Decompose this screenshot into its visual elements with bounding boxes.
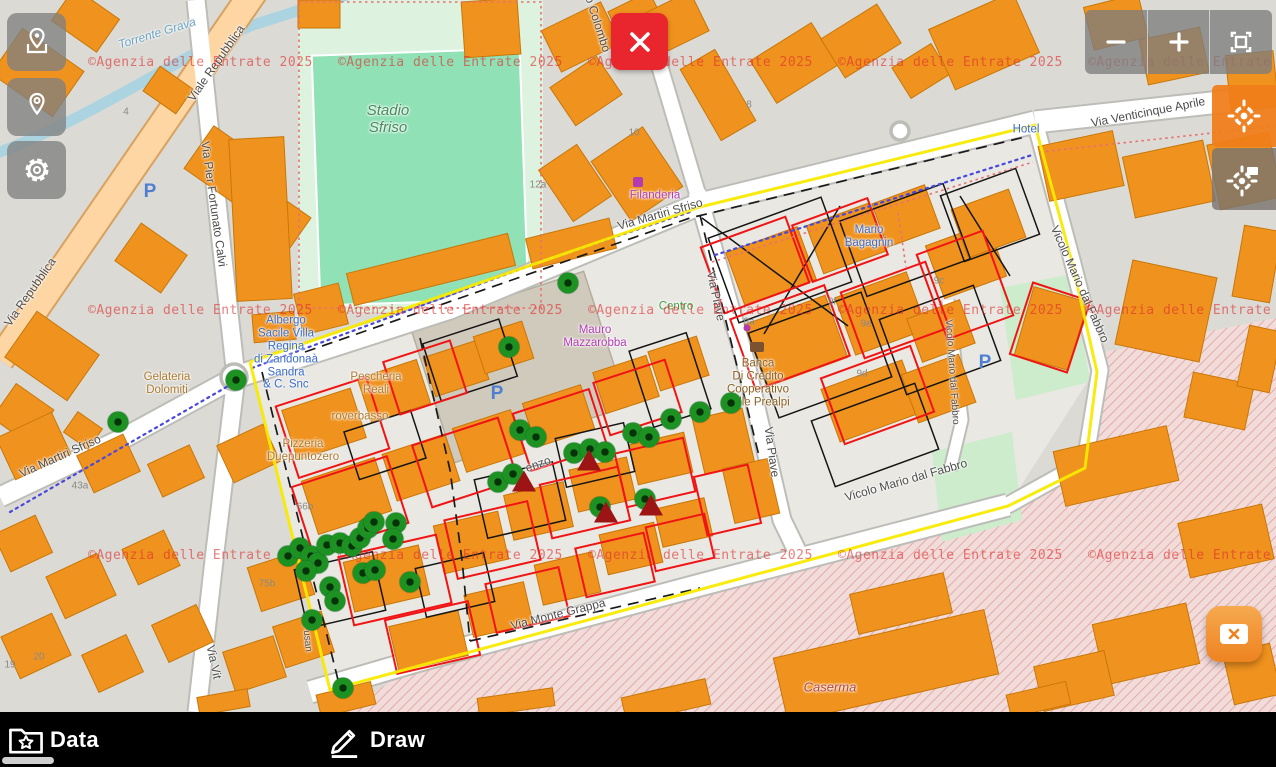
locate-me-button[interactable] — [1212, 85, 1276, 147]
green-point-marker[interactable] — [499, 337, 520, 358]
green-point-marker[interactable] — [595, 442, 616, 463]
gear-icon — [20, 153, 54, 187]
data-button-label: Data — [50, 727, 99, 753]
location-pin-button[interactable] — [7, 78, 66, 136]
crosshair-icon — [1226, 98, 1262, 134]
minus-icon — [1099, 25, 1133, 59]
plus-icon — [1162, 25, 1196, 59]
green-point-marker[interactable] — [383, 529, 404, 550]
map-canvas[interactable]: Viale RepubblicaVia RepubblicaVia Pier F… — [0, 0, 1276, 712]
zoom-bar — [1085, 10, 1272, 74]
green-point-marker[interactable] — [333, 678, 354, 699]
app-screen: Viale RepubblicaVia RepubblicaVia Pier F… — [0, 0, 1276, 767]
fullscreen-icon — [1223, 24, 1259, 60]
pin-tray-icon — [20, 25, 54, 59]
green-point-marker[interactable] — [296, 561, 317, 582]
full-extent-button[interactable] — [1210, 10, 1272, 74]
green-point-marker[interactable] — [661, 409, 682, 430]
green-point-marker[interactable] — [690, 402, 711, 423]
green-point-marker[interactable] — [108, 412, 129, 433]
map-tiles — [0, 0, 1276, 712]
green-point-marker[interactable] — [302, 610, 323, 631]
bottom-toolbar: Data Draw — [0, 712, 1276, 767]
save-location-button[interactable] — [7, 13, 66, 71]
settings-button[interactable] — [7, 141, 66, 199]
draw-button-label: Draw — [370, 727, 425, 753]
close-button[interactable] — [611, 13, 668, 70]
crosshair-box-icon — [1226, 161, 1262, 197]
zoom-in-button[interactable] — [1148, 10, 1211, 74]
green-point-marker[interactable] — [365, 560, 386, 581]
folder-star-icon — [6, 720, 46, 760]
green-point-marker[interactable] — [639, 427, 660, 448]
green-point-marker[interactable] — [721, 393, 742, 414]
green-point-marker[interactable] — [325, 591, 346, 612]
pencil-icon — [324, 719, 366, 761]
nav-hint — [2, 757, 54, 764]
pin-icon — [20, 90, 54, 124]
locate-extent-button[interactable] — [1212, 148, 1276, 210]
green-point-marker[interactable] — [558, 273, 579, 294]
green-point-marker[interactable] — [526, 427, 547, 448]
zoom-out-button[interactable] — [1085, 10, 1148, 74]
green-point-marker[interactable] — [400, 572, 421, 593]
green-point-marker[interactable] — [226, 370, 247, 391]
draw-button[interactable]: Draw — [324, 712, 425, 767]
x-icon — [1220, 624, 1248, 644]
dismiss-overlay-button[interactable] — [1206, 606, 1262, 662]
green-point-marker[interactable] — [364, 512, 385, 533]
x-icon — [612, 14, 668, 70]
